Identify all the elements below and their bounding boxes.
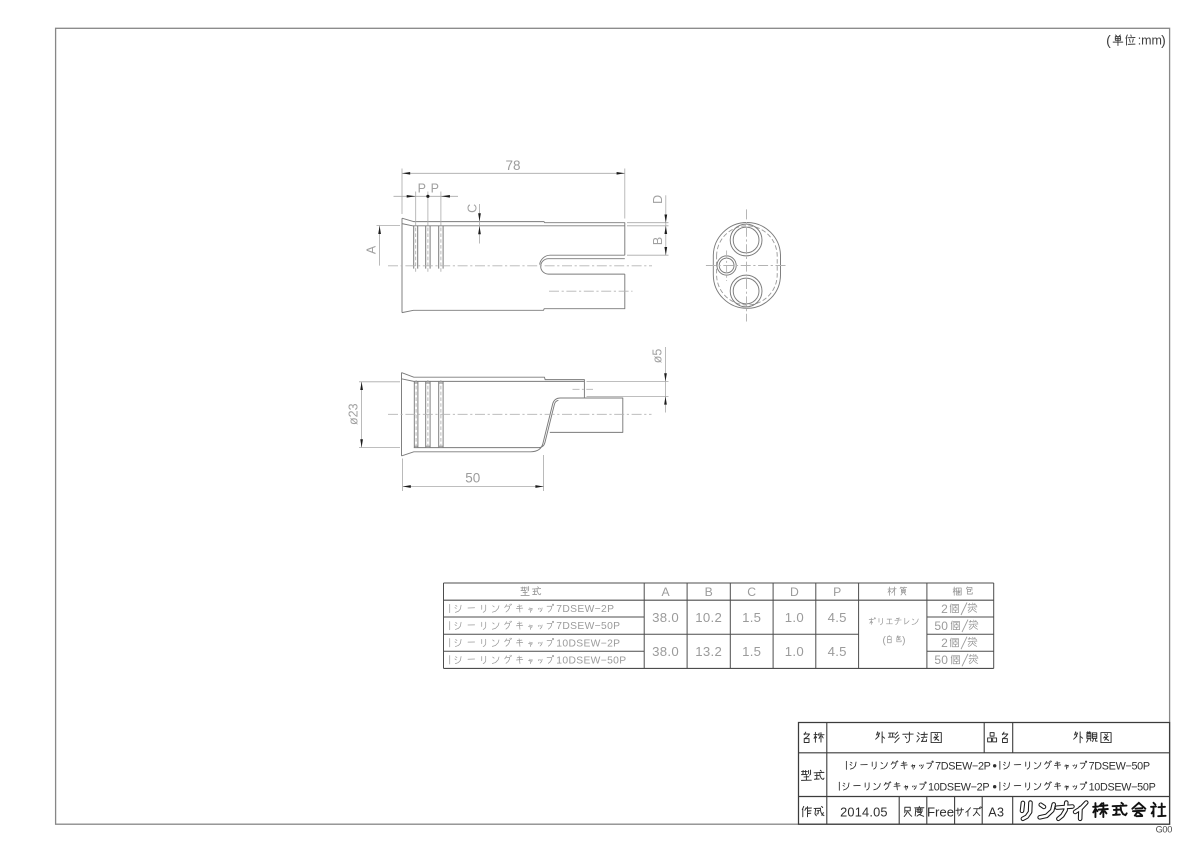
svg-text:10DSEW−2P: 10DSEW−2P (928, 781, 989, 793)
svg-text:10.2: 10.2 (695, 610, 722, 625)
svg-text:1.5: 1.5 (742, 644, 761, 659)
svg-text:P: P (431, 182, 439, 196)
svg-text:38.0: 38.0 (652, 644, 679, 659)
svg-text:7DSEW−2P: 7DSEW−2P (935, 760, 991, 772)
svg-text:78: 78 (505, 158, 520, 173)
svg-text:G00: G00 (1156, 825, 1173, 835)
svg-text:1.0: 1.0 (785, 644, 804, 659)
svg-text:7DSEW−2P: 7DSEW−2P (556, 604, 614, 615)
svg-text:ø5: ø5 (651, 349, 665, 364)
svg-text:B: B (651, 237, 665, 245)
svg-text:50: 50 (934, 653, 948, 667)
svg-text:D: D (790, 585, 799, 599)
svg-text:2: 2 (941, 636, 948, 650)
svg-text:): ) (1161, 32, 1166, 48)
svg-text:ø23: ø23 (346, 403, 360, 425)
svg-text:10DSEW−50P: 10DSEW−50P (556, 655, 626, 666)
svg-text:Free: Free (927, 804, 954, 819)
svg-text:(: ( (1106, 32, 1111, 48)
svg-text:7DSEW−50P: 7DSEW−50P (1089, 760, 1150, 772)
svg-text:B: B (705, 585, 713, 599)
svg-text:C: C (466, 204, 480, 213)
svg-text:50: 50 (934, 619, 948, 633)
svg-text:2014.05: 2014.05 (840, 804, 888, 819)
svg-text:13.2: 13.2 (695, 644, 722, 659)
svg-text:2: 2 (941, 602, 948, 616)
svg-text:7DSEW−50P: 7DSEW−50P (556, 621, 620, 632)
svg-text:1.0: 1.0 (785, 610, 804, 625)
svg-text:10DSEW−50P: 10DSEW−50P (1089, 781, 1156, 793)
svg-text:C: C (747, 585, 756, 599)
svg-text:P: P (418, 182, 426, 196)
svg-text:38.0: 38.0 (652, 610, 679, 625)
svg-text:A3: A3 (988, 805, 1004, 819)
svg-text:A: A (364, 245, 378, 254)
svg-text:): ) (902, 635, 905, 646)
svg-text:P: P (833, 585, 841, 599)
svg-text:50: 50 (465, 471, 480, 486)
svg-text:10DSEW−2P: 10DSEW−2P (556, 638, 620, 649)
svg-text:4.5: 4.5 (828, 610, 847, 625)
svg-text:D: D (651, 195, 665, 204)
svg-text:4.5: 4.5 (828, 644, 847, 659)
svg-text:A: A (662, 585, 671, 599)
svg-text:1.5: 1.5 (742, 610, 761, 625)
svg-text:mm: mm (1141, 34, 1162, 48)
